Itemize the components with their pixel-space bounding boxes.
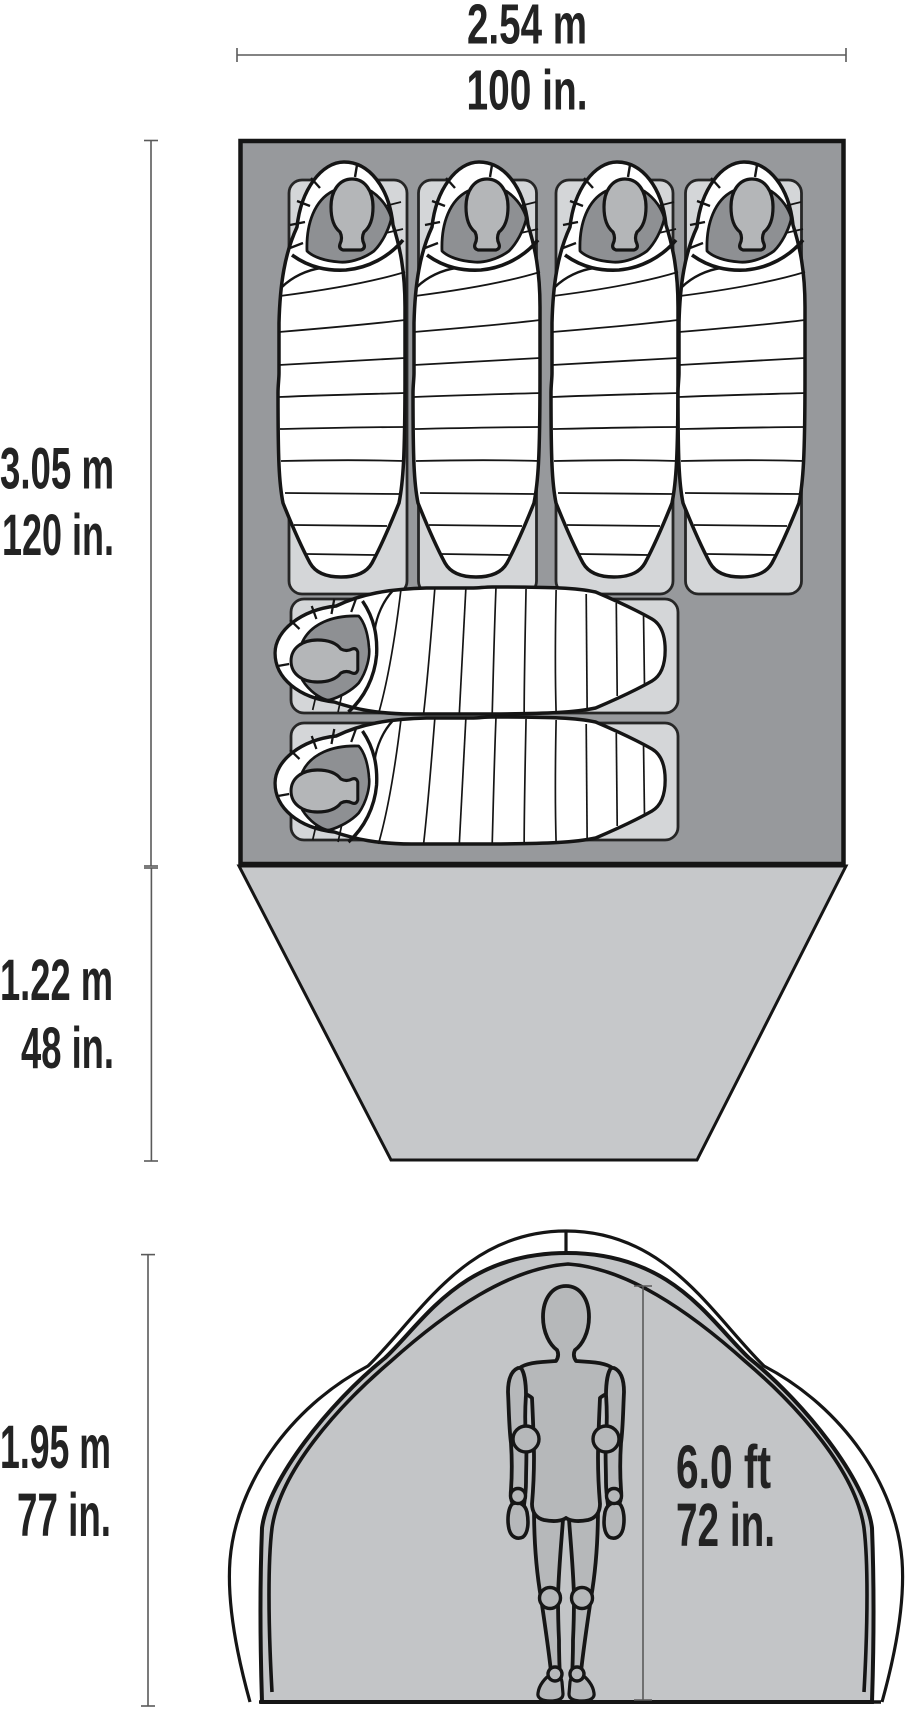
svg-text:100 in.: 100 in.	[467, 59, 588, 123]
svg-text:77 in.: 77 in.	[17, 1481, 111, 1549]
svg-text:72 in.: 72 in.	[676, 1491, 775, 1559]
svg-text:3.05 m: 3.05 m	[0, 437, 114, 502]
svg-text:120 in.: 120 in.	[2, 503, 114, 568]
svg-text:1.22 m: 1.22 m	[0, 948, 113, 1013]
svg-text:1.95 m: 1.95 m	[0, 1413, 111, 1481]
svg-text:48 in.: 48 in.	[21, 1016, 114, 1081]
svg-text:2.54 m: 2.54 m	[467, 0, 587, 57]
